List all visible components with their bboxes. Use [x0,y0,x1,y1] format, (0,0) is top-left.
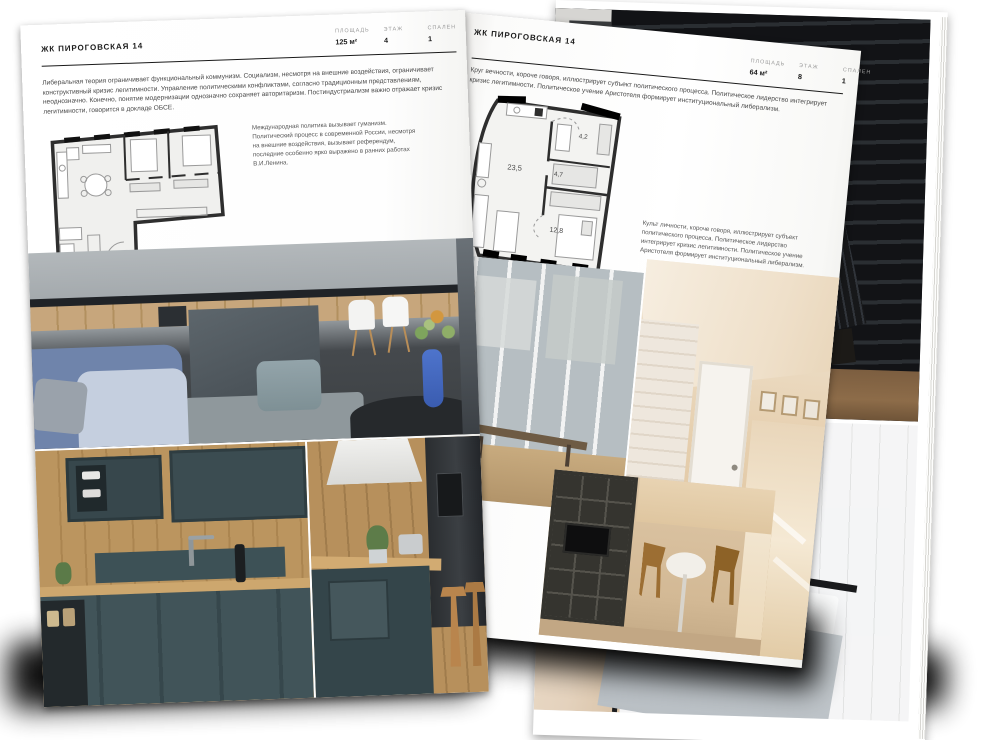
stat-area-label: ПЛОЩАДЬ [750,58,785,67]
room-area-bath: 4,2 [578,133,588,141]
wall-frame-shape-2 [781,395,799,416]
dining-table-shape [349,394,479,439]
left-page: ЖК ПИРОГОВСКАЯ 14 ПЛОЩАДЬ 125 м² ЭТАЖ 4 … [20,10,489,707]
pot-shape [398,534,423,555]
building-shape-2 [545,274,623,364]
jar-shape [47,611,60,627]
intro-paragraph-left: Либеральная теория ограничивает функцион… [42,65,443,117]
stat-floor-value: 8 [798,72,829,84]
hood-shape [325,438,422,485]
photo-green-kitchen-right [307,436,489,698]
stat-floor: ЭТАЖ 4 [384,26,415,45]
oven-shape [158,306,187,327]
vase-shape [422,349,444,408]
wine-bottle-shape [235,544,246,582]
stat-bedrooms: СПАЛЕН 1 [841,67,873,88]
sofa-cushion-shape [76,368,189,448]
building-shape [470,275,536,350]
stat-area: ПЛОЩАДЬ 125 м² [335,27,370,46]
floorplan-right: 23,5 4,7 4,2 12,8 [448,89,634,280]
room-area-living: 23,5 [507,162,522,172]
white-chair-shape [348,299,375,330]
herb-plant-shape [55,562,72,585]
right-page-stats: ПЛОЩАДЬ 64 м² ЭТАЖ 8 СПАЛЕН 1 [749,58,873,88]
brand-heading-left: ЖК ПИРОГОВСКАЯ 14 [41,41,143,54]
header-rule-left [42,51,457,67]
chair-leg-shape-3 [388,327,394,353]
stat-bedrooms-label: СПАЛЕН [428,24,458,31]
flowers-shape [404,300,460,354]
room-area-hall: 4,7 [554,171,564,179]
stat-bedrooms: СПАЛЕН 1 [428,24,459,43]
wood-chair-shape [639,542,666,598]
note-paragraph-left: Международная политика вызывает гуманизм… [252,118,418,169]
stat-area-label: ПЛОЩАДЬ [335,27,370,34]
stat-area-value: 64 м² [749,67,784,79]
stat-bedrooms-value: 1 [428,33,458,43]
upper-cabinet-shape-2 [169,446,307,523]
oven-shape-2 [436,472,464,517]
plant-pot-shape [369,549,387,564]
tap-shape [188,538,194,566]
dishes-shape-2 [83,489,101,498]
stat-area-value: 125 м² [335,36,370,46]
dishes-shape [82,471,100,480]
island-door-shape [328,579,390,641]
stat-area: ПЛОЩАДЬ 64 м² [749,58,785,79]
magazine-mockup: ЖК ПИРОГОВСКАЯ 14 ПЛОЩАДЬ 125 м² ЭТАЖ 4 … [0,0,991,740]
left-page-stats: ПЛОЩАДЬ 125 м² ЭТАЖ 4 СПАЛЕН 1 [335,24,458,46]
pillow-shape [31,378,88,435]
stat-bedrooms-value: 1 [841,76,872,88]
stat-floor-label: ЭТАЖ [384,26,414,33]
photo-living-room [539,469,776,656]
wall-frame-shape-3 [803,399,821,420]
stat-floor-label: ЭТАЖ [799,63,829,72]
photo-kitchen-island [28,238,480,449]
brand-heading-right: ЖК ПИРОГОВСКАЯ 14 [474,28,576,47]
pouf-shape [256,359,322,411]
tv-shape [563,523,612,557]
chair-leg-shape-2 [369,330,376,356]
wall-frame-shape [759,391,777,412]
chair-leg-shape [352,330,358,356]
jar-shape-2 [63,608,76,626]
room-area-bedroom: 12,8 [549,227,563,235]
stat-floor-value: 4 [384,35,414,45]
table-leg-shape [678,574,688,632]
wood-chair-shape-2 [711,545,740,605]
photo-green-kitchen-left [35,442,314,707]
stat-floor: ЭТАЖ 8 [798,63,830,84]
